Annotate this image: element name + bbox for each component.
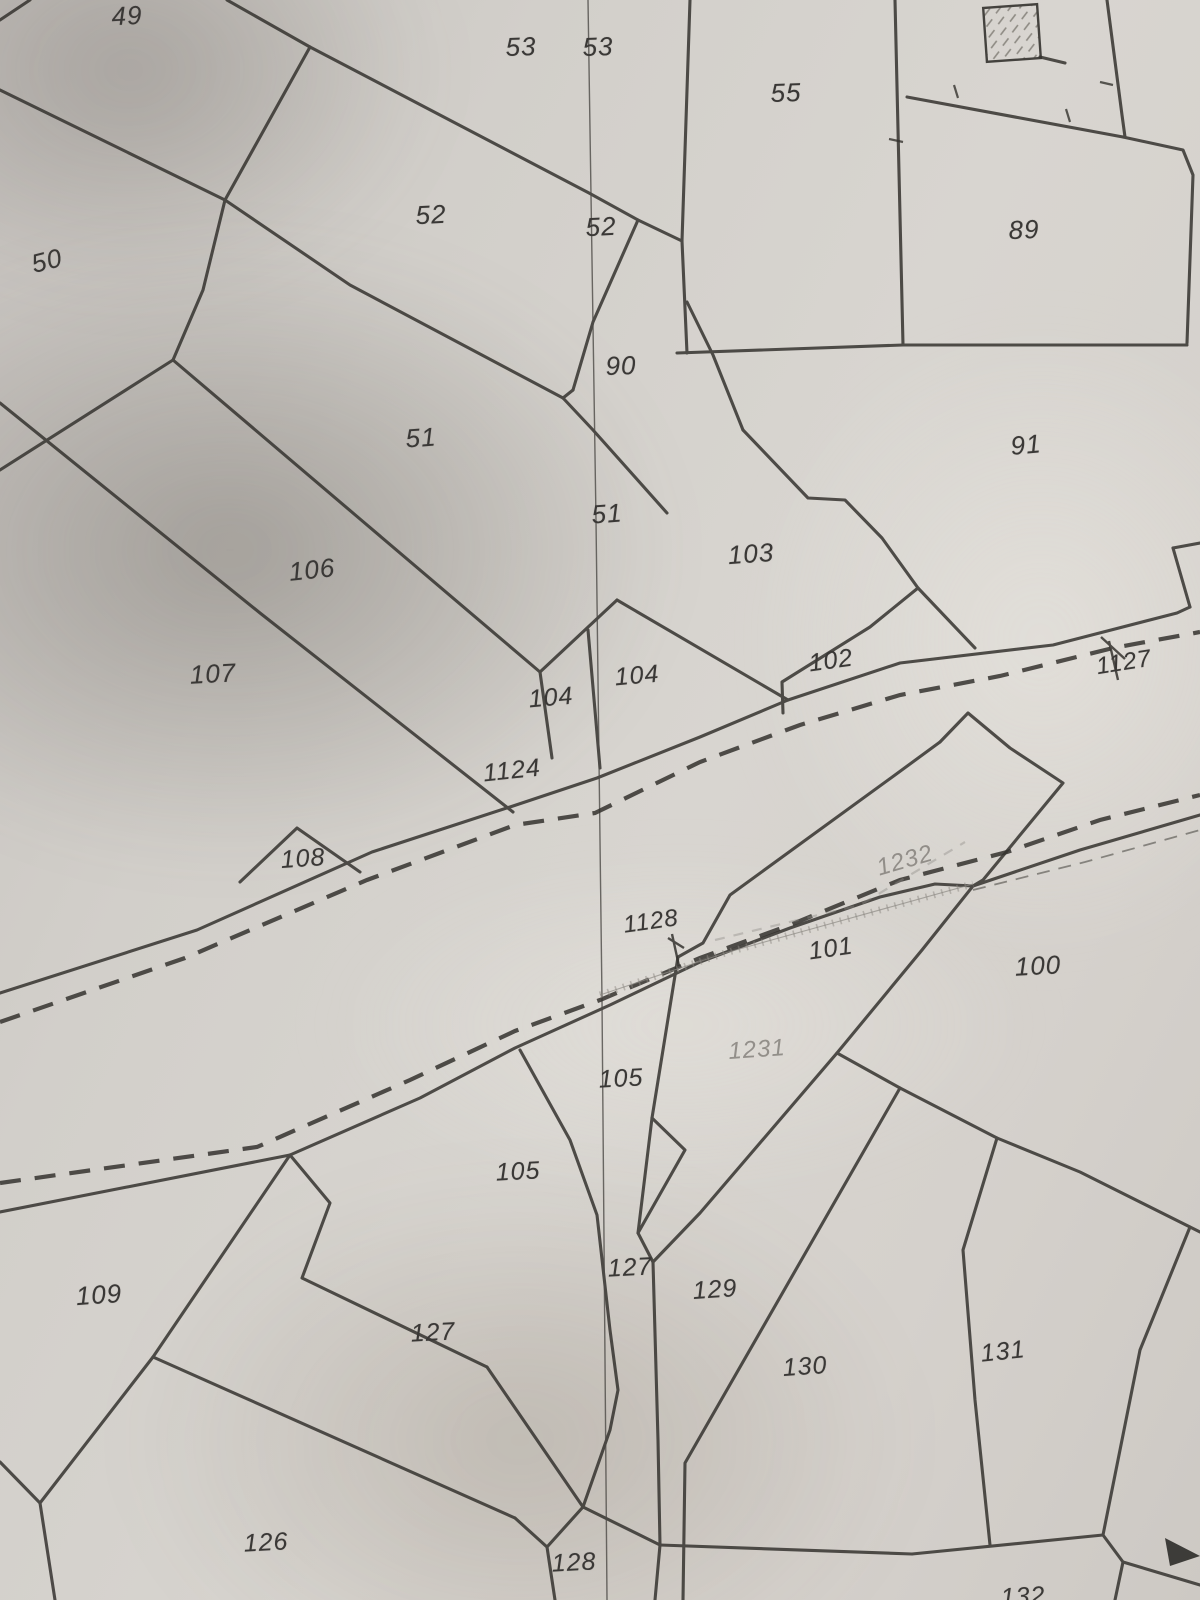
- boundary-ticks: [889, 82, 1113, 142]
- parcel-label-109: 109: [75, 1278, 123, 1312]
- parcel-label-1124: 1124: [482, 754, 542, 789]
- direction-arrow-marker: [1165, 1538, 1200, 1566]
- parcel-label-131: 131: [979, 1335, 1027, 1369]
- parcel-label-51-left: 51: [404, 421, 437, 454]
- parcel-label-103: 103: [727, 537, 775, 571]
- parcel-label-104-left: 104: [527, 682, 574, 715]
- cadastral-map-scan: 4953535589505252905151911031061071041041…: [0, 0, 1200, 1600]
- parcel-label-107: 107: [189, 657, 237, 690]
- parcel-label-102: 102: [807, 644, 855, 679]
- parcel-label-53-left: 53: [505, 31, 537, 63]
- hatched-square-symbol: [983, 4, 1041, 62]
- parcel-label-55: 55: [770, 77, 802, 109]
- parcel-label-1231: 1231: [727, 1034, 786, 1066]
- parcel-label-105-left: 105: [495, 1156, 541, 1187]
- parcel-label-100: 100: [1014, 949, 1062, 982]
- parcel-label-49: 49: [111, 0, 144, 32]
- parcel-label-128: 128: [551, 1547, 597, 1578]
- road-b-thin-dashed-edge: [973, 830, 1200, 890]
- parcel-label-105-right: 105: [598, 1063, 644, 1094]
- parcel-label-89: 89: [1008, 214, 1041, 247]
- parcel-label-101: 101: [807, 932, 855, 967]
- parcel-label-91: 91: [1009, 428, 1043, 462]
- parcel-label-127-left: 127: [410, 1317, 456, 1348]
- parcel-label-126: 126: [243, 1527, 289, 1558]
- parcel-label-108: 108: [280, 843, 327, 875]
- parcel-label-127-right: 127: [607, 1252, 653, 1283]
- parcel-label-104-right: 104: [613, 660, 660, 693]
- parcel-label-106: 106: [287, 552, 336, 588]
- parcel-label-129: 129: [692, 1274, 739, 1306]
- parcel-label-130: 130: [782, 1351, 829, 1383]
- parcel-label-52-right: 52: [585, 211, 618, 244]
- parcel-label-53-right: 53: [582, 31, 614, 63]
- parcel-label-52-left: 52: [415, 199, 448, 232]
- road-centerlines: [0, 632, 1200, 1183]
- parcel-label-51-right: 51: [590, 497, 623, 530]
- parcel-label-132-cut: 132: [1000, 1581, 1046, 1600]
- parcel-label-90: 90: [605, 350, 637, 382]
